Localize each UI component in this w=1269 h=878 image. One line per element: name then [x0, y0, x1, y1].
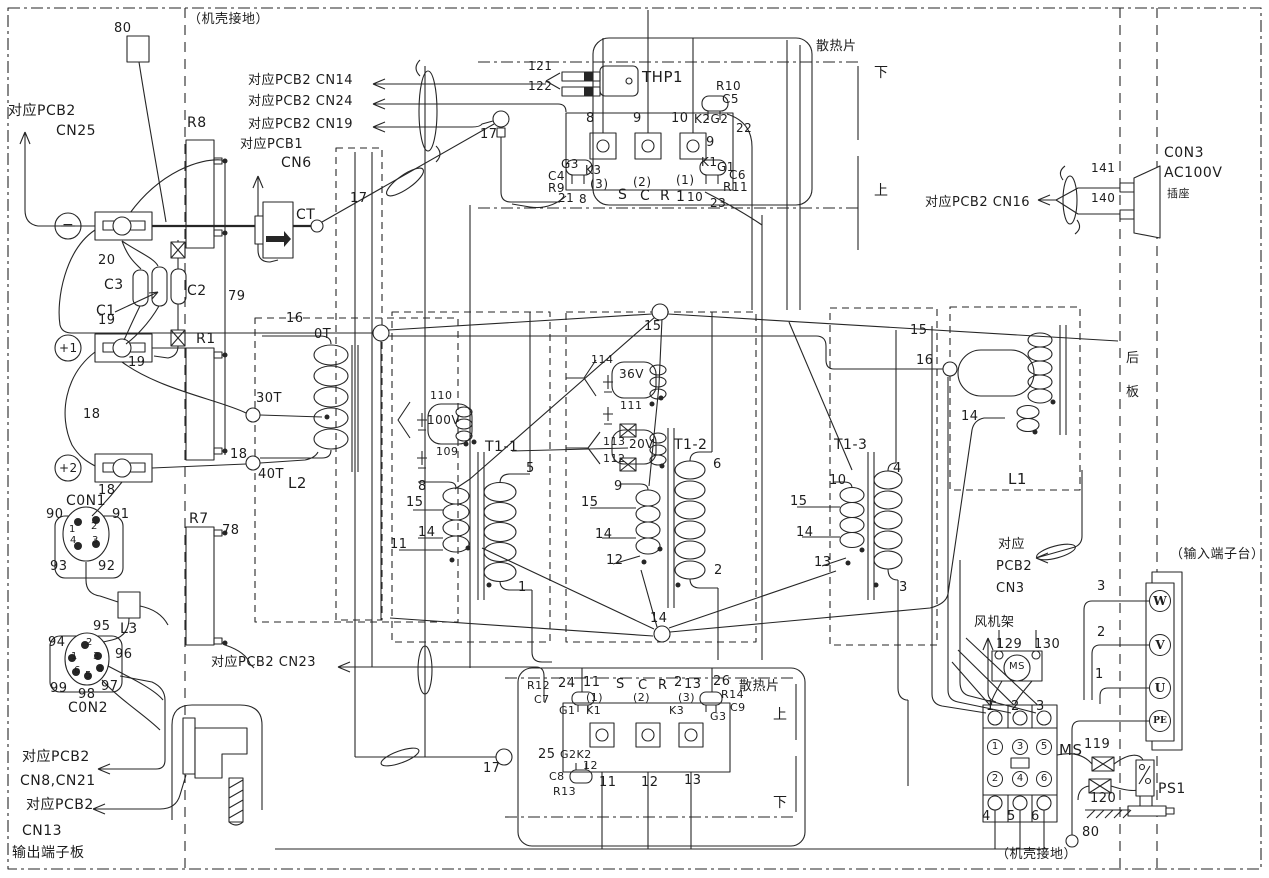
t12-2: 2	[714, 564, 723, 577]
heatsink-top-lower: 下	[874, 66, 889, 80]
winding-20v: 20V	[629, 438, 654, 450]
scr2-c7: C7	[534, 694, 550, 705]
scr2-s: S	[616, 678, 625, 691]
input-board: （输入端子台）	[1170, 548, 1265, 561]
resistor-r8: R8	[187, 116, 207, 130]
con1-91: 91	[112, 508, 130, 521]
pcb2-cn13-line1: 对应PCB2	[26, 798, 94, 812]
pcb2-cn23: 对应PCB2 CN23	[211, 656, 316, 669]
con1-p2: 2	[91, 522, 98, 532]
con2-p6: 6	[74, 666, 81, 676]
ms-pole-3: 3	[1012, 739, 1028, 755]
terminal-plus2: +2	[59, 462, 78, 474]
ms-pole-5: 5	[1036, 739, 1052, 755]
scr1-pin8: 8	[586, 112, 595, 125]
con1-p4: 4	[70, 536, 77, 546]
wire-3: 3	[1097, 580, 1106, 593]
resistor-r7: R7	[189, 512, 209, 526]
pcb2-cn24: 对应PCB2 CN24	[248, 95, 353, 108]
t12-15: 15	[581, 496, 599, 509]
ct-label: CT	[296, 208, 315, 222]
scr2-r: R	[658, 679, 668, 692]
t1-3: T1-3	[834, 438, 867, 452]
pcb2-cn25-line2: CN25	[56, 124, 96, 138]
con2-94: 94	[48, 636, 66, 649]
t13-14: 14	[796, 526, 814, 539]
t11-8: 8	[418, 480, 427, 493]
wire-23: 23	[710, 197, 726, 209]
wire-17-a: 17	[350, 192, 368, 205]
chassis-ground-top: （机壳接地）	[188, 13, 269, 26]
ms-bot-4: 4	[982, 810, 991, 823]
t13-3: 3	[899, 581, 908, 594]
con1-p1: 1	[69, 525, 76, 535]
wire-120: 120	[1090, 792, 1116, 805]
wire-79: 79	[228, 290, 246, 303]
scr1-ph1: (1)	[676, 174, 695, 186]
rear-panel-2: 板	[1126, 386, 1140, 399]
wire-109: 109	[436, 446, 459, 457]
wire-80-top: 80	[114, 22, 132, 35]
wire-16a: 16	[286, 312, 304, 325]
t13-4: 4	[893, 462, 902, 475]
ps1: PS1	[1158, 782, 1186, 796]
con2-95: 95	[93, 620, 111, 633]
con1: C0N1	[66, 494, 106, 508]
pcb1-cn6-line1: 对应PCB1	[240, 138, 303, 151]
c3: C3	[104, 278, 124, 292]
t12-6: 6	[713, 458, 722, 471]
fan-frame: 风机架	[974, 616, 1015, 629]
scr1-k1: K1	[701, 156, 718, 168]
con2-p2: 2	[86, 638, 93, 648]
r10: R10	[716, 80, 741, 92]
con2-p5: 5	[85, 671, 92, 681]
k2g2: K2G2	[694, 113, 728, 125]
wire-121: 121	[528, 60, 552, 72]
tap-30t: 30T	[256, 392, 282, 405]
scr1-s: S	[618, 188, 627, 202]
wire-119: 119	[1084, 738, 1110, 751]
scr1-1: 1	[676, 190, 685, 204]
ms-bot-5: 5	[1007, 810, 1016, 823]
scr1-9b: 9	[706, 136, 715, 149]
terminal-minus: −	[62, 218, 74, 232]
con3-line1: C0N3	[1164, 146, 1204, 160]
scr2-c8: C8	[549, 771, 565, 782]
wire-19b: 19	[128, 356, 146, 369]
con2-p3: 3	[93, 652, 100, 662]
wire-112: 112	[603, 453, 626, 464]
c2: C2	[187, 284, 207, 298]
chassis-ground-bottom: （机壳接地）	[996, 848, 1077, 861]
ms-pole-2: 2	[987, 771, 1003, 787]
t12-12: 12	[606, 554, 624, 567]
t13-10: 10	[829, 474, 847, 487]
wire-122: 122	[528, 80, 552, 92]
wire-110: 110	[430, 390, 453, 401]
scr2-k3: K3	[669, 705, 684, 716]
pcb1-cn6-line2: CN6	[281, 156, 312, 170]
ms-pole-6: 6	[1036, 771, 1052, 787]
heatsink-bottom-upper: 上	[773, 708, 788, 722]
scr2-g3: G3	[710, 711, 727, 722]
con2-96: 96	[115, 648, 133, 661]
scr2-c9: C9	[730, 702, 746, 713]
scr2-12b: 12	[641, 776, 659, 789]
scr2-24: 24	[558, 677, 576, 690]
t13-15: 15	[790, 495, 808, 508]
wire-18a: 18	[83, 408, 101, 421]
wire-21: 21	[558, 192, 574, 204]
heatsink-bottom-lower: 下	[773, 796, 788, 810]
wire-130: 130	[1034, 638, 1060, 651]
scr2-25: 25	[538, 748, 556, 761]
wire-114: 114	[591, 354, 614, 365]
scr2-13t: 13	[684, 678, 702, 691]
heatsink-top-upper: 上	[874, 184, 889, 198]
wire-113: 113	[603, 436, 626, 447]
t11-1: 1	[518, 581, 527, 594]
t1-2: T1-2	[674, 438, 707, 452]
scr2-ph2: (2)	[633, 692, 650, 703]
wire-22: 22	[736, 122, 752, 134]
scr2-ph3: (3)	[678, 692, 695, 703]
scr2-k1: K1	[586, 705, 601, 716]
terminal-w: W	[1149, 590, 1171, 612]
con1-92: 92	[98, 560, 116, 573]
wire-17-c: 17	[483, 762, 501, 775]
heatsink-top: 散热片	[816, 40, 857, 53]
l2: L2	[288, 476, 307, 491]
con2: C0N2	[68, 701, 108, 715]
pcb2-cn25-line1: 对应PCB2	[8, 104, 76, 118]
con2-p1: 1	[71, 652, 78, 662]
wire-16b: 16	[916, 354, 934, 367]
ms-pole-1: 1	[987, 739, 1003, 755]
l3: L3	[120, 622, 138, 636]
wire-18c: 18	[230, 448, 248, 461]
resistor-r1: R1	[196, 332, 216, 346]
terminal-u: U	[1149, 677, 1171, 699]
wire-1: 1	[1095, 668, 1104, 681]
l1-14: 14	[961, 410, 979, 423]
ms-motor-label: MS	[1009, 662, 1025, 672]
wire-111: 111	[620, 400, 643, 411]
wire-140: 140	[1091, 192, 1115, 204]
t13-13: 13	[814, 556, 832, 569]
wire-141: 141	[1091, 162, 1115, 174]
junction-15: 15	[644, 320, 662, 333]
rear-panel-1: 后	[1126, 352, 1140, 365]
con3-line3: 插座	[1167, 188, 1190, 199]
wire-129: 129	[996, 638, 1022, 651]
t11-14: 14	[418, 526, 436, 539]
scr1-c: C	[640, 189, 650, 203]
pcb2-cn3-line1: 对应	[998, 538, 1025, 551]
t11-15: 15	[406, 496, 424, 509]
wire-8b: 8	[579, 193, 587, 205]
pcb2-cn8-line2: CN8,CN21	[20, 774, 96, 788]
con1-93: 93	[50, 560, 68, 573]
scr2-12s: 12	[583, 760, 598, 771]
scr1-r: R	[660, 189, 670, 203]
wire-19a: 19	[98, 314, 116, 327]
pcb2-cn13-line2: CN13	[22, 824, 62, 838]
ms-pole-4: 4	[1012, 771, 1028, 787]
thp1: THP1	[642, 70, 683, 85]
ms-top-3: 3	[1036, 700, 1045, 713]
scr2-11t: 11	[583, 676, 601, 689]
scr2-g1: G1	[559, 705, 576, 716]
con2-p4: 4	[97, 665, 104, 675]
scr2-r13: R13	[553, 786, 576, 797]
scr2-r12: R12	[527, 680, 550, 691]
wire-17-b: 17	[480, 128, 498, 141]
scr1-pin9: 9	[633, 112, 642, 125]
pcb2-cn14: 对应PCB2 CN14	[248, 74, 353, 87]
wire-2: 2	[1097, 626, 1106, 639]
scr1-ph2: (2)	[633, 176, 652, 188]
pcb2-cn8-line1: 对应PCB2	[22, 750, 90, 764]
pcb2-cn16: 对应PCB2 CN16	[925, 196, 1030, 209]
t12-14: 14	[595, 528, 613, 541]
ms-bot-6: 6	[1031, 810, 1040, 823]
scr2-2: 2	[674, 676, 683, 689]
labels-layer: 80（机壳接地）对应PCB2CN25对应PCB2 CN14对应PCB2 CN24…	[0, 0, 1269, 878]
l1: L1	[1008, 472, 1027, 487]
t12-9: 9	[614, 480, 623, 493]
r11: R11	[723, 181, 748, 193]
t11-11: 11	[390, 538, 408, 551]
terminal-plus1: +1	[59, 342, 78, 354]
scr1-ph3: (3)	[590, 178, 609, 190]
con1-p3: 3	[92, 536, 99, 546]
tap-40t: 40T	[258, 468, 284, 481]
terminal-v: V	[1149, 634, 1171, 656]
ms-contactor: MS	[1059, 743, 1082, 758]
wire-78: 78	[222, 524, 240, 537]
con2-99: 99	[50, 682, 68, 695]
heatsink-bottom: 散热片	[739, 680, 780, 693]
scr2-13b: 13	[684, 774, 702, 787]
scr2-26: 26	[713, 675, 731, 688]
pcb2-cn3-line3: CN3	[996, 582, 1025, 595]
winding-36v: 36V	[619, 368, 644, 380]
con2-97: 97	[101, 680, 119, 693]
tap-0t: 0T	[314, 328, 331, 341]
junction-14: 14	[650, 612, 668, 625]
scr1-k3: K3	[585, 164, 602, 176]
output-board: 输出端子板	[12, 846, 85, 860]
c5: C5	[722, 93, 739, 105]
t11-5: 5	[526, 462, 535, 475]
schematic-page: 80（机壳接地）对应PCB2CN25对应PCB2 CN14对应PCB2 CN24…	[0, 0, 1269, 878]
wire-10b: 10	[687, 191, 703, 203]
scr2-11b: 11	[599, 776, 617, 789]
con3-line2: AC100V	[1164, 166, 1222, 180]
wire-20: 20	[98, 254, 116, 267]
pcb2-cn3-line2: PCB2	[996, 560, 1032, 573]
con1-90: 90	[46, 508, 64, 521]
pcb2-cn19: 对应PCB2 CN19	[248, 118, 353, 131]
t1-1: T1-1	[485, 440, 518, 454]
ms-top-2: 2	[1011, 700, 1020, 713]
terminal-pe: PE	[1149, 710, 1171, 732]
ms-top-1: 1	[986, 700, 995, 713]
winding-100v: 100V	[427, 414, 460, 426]
wire-80-bottom: 80	[1082, 826, 1100, 839]
wire-15r: 15	[910, 324, 928, 337]
scr1-pin10: 10	[671, 112, 689, 125]
scr2-ph1: (1)	[586, 692, 603, 703]
